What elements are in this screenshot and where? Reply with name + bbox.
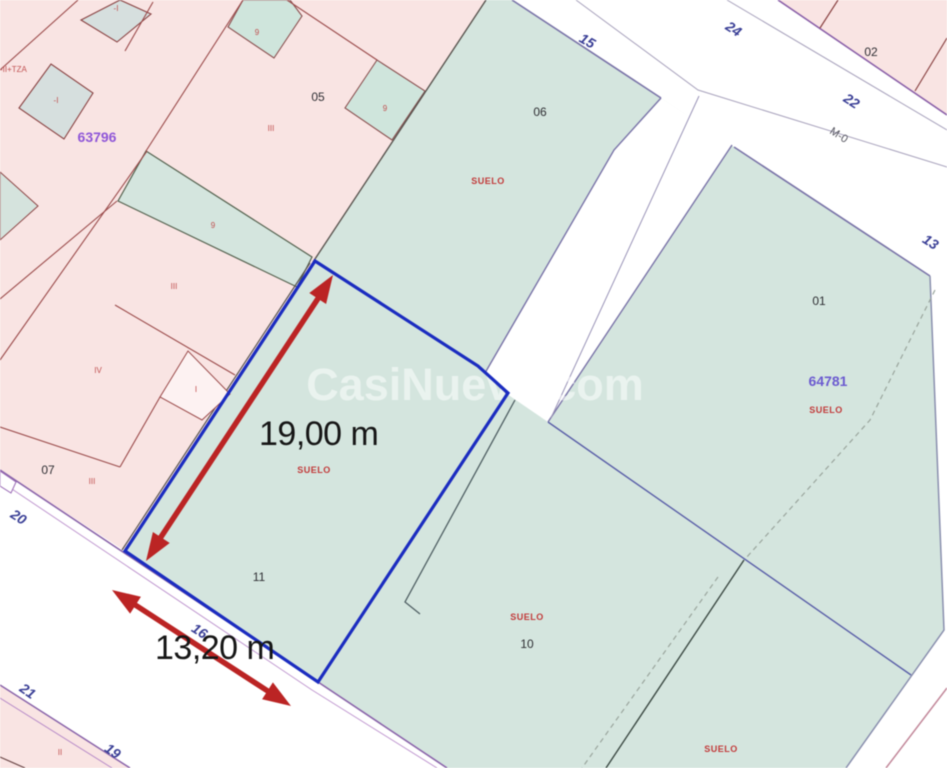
svg-text:SUELO: SUELO (704, 744, 738, 754)
svg-text:63796: 63796 (78, 129, 117, 145)
svg-text:III: III (171, 282, 178, 291)
svg-text:02: 02 (864, 45, 878, 59)
svg-text:05: 05 (311, 90, 325, 104)
svg-text:SUELO: SUELO (471, 176, 505, 186)
svg-text:CasiNuevo.com: CasiNuevo.com (306, 359, 644, 410)
svg-text:9: 9 (383, 104, 388, 113)
svg-text:-I: -I (54, 96, 59, 105)
svg-text:9: 9 (255, 28, 260, 37)
svg-text:-I: -I (114, 4, 119, 13)
svg-text:01: 01 (812, 294, 826, 308)
svg-text:SUELO: SUELO (809, 405, 843, 415)
svg-text:10: 10 (520, 637, 534, 651)
svg-text:III: III (89, 477, 96, 486)
svg-text:06: 06 (533, 105, 547, 119)
svg-text:SUELO: SUELO (510, 612, 544, 622)
svg-text:SUELO: SUELO (297, 465, 331, 475)
svg-text:IV: IV (94, 366, 102, 375)
svg-text:19,00 m: 19,00 m (259, 415, 378, 453)
svg-text:II: II (58, 748, 62, 757)
svg-text:-II+TZA: -II+TZA (0, 65, 28, 74)
svg-text:64781: 64781 (809, 373, 848, 389)
svg-text:III: III (268, 124, 275, 133)
svg-text:11: 11 (253, 570, 266, 584)
svg-text:07: 07 (41, 463, 55, 477)
svg-text:9: 9 (211, 221, 216, 230)
svg-text:13,20 m: 13,20 m (155, 629, 274, 667)
svg-text:I: I (195, 385, 197, 394)
